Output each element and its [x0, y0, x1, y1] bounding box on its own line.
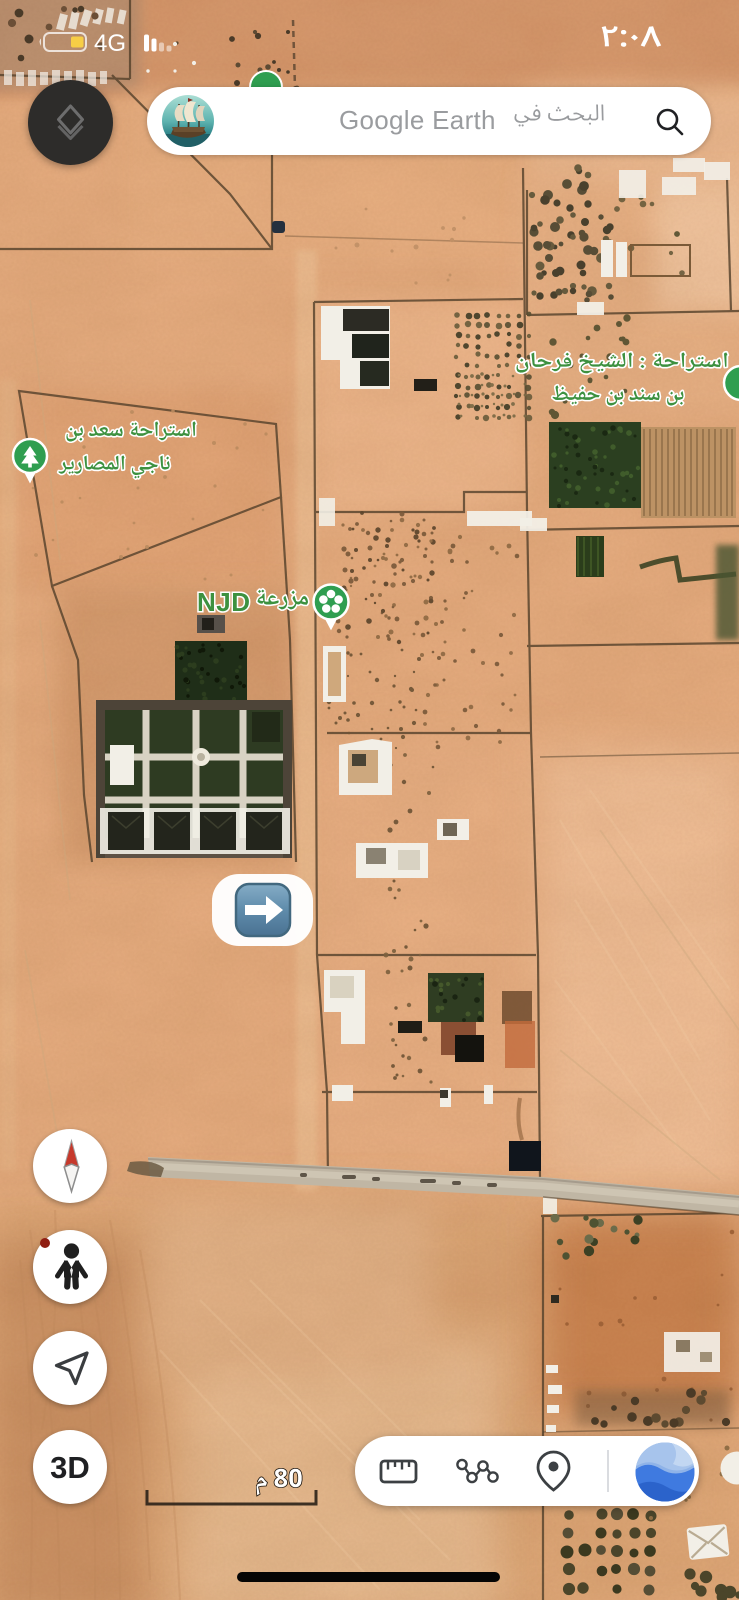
svg-text:NJD: NJD: [197, 587, 251, 617]
svg-text:3D: 3D: [50, 1450, 90, 1485]
